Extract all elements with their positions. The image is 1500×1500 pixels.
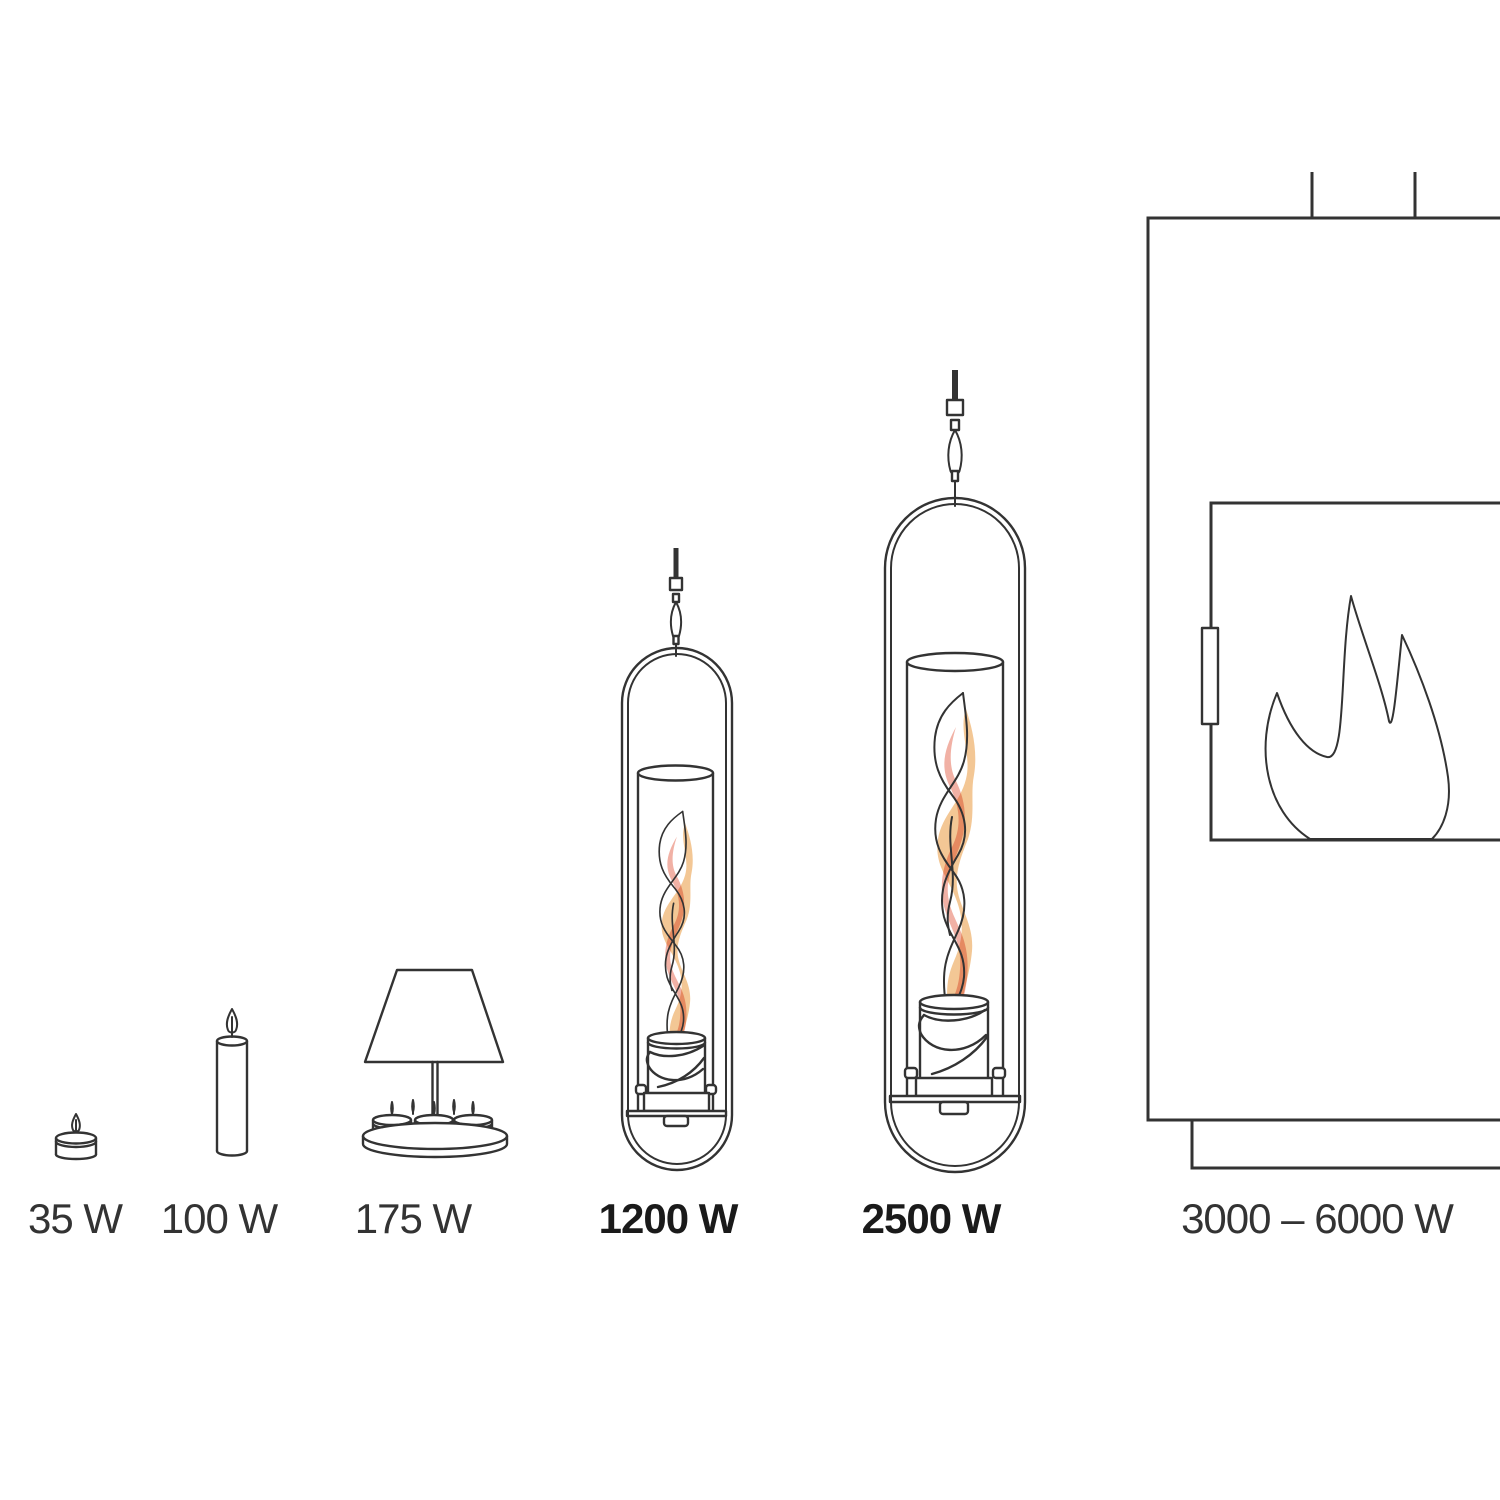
flame-icon [72,1114,80,1132]
stove-base [1192,1120,1500,1168]
hanging-fire-lantern-small-icon [616,540,736,1180]
flame-icon [227,1009,237,1037]
wattage-label: 1200 W [599,1198,738,1240]
door-handle [1202,628,1218,724]
wattage-label: 35 W [28,1198,122,1240]
hanging-fire-lantern-large-icon [880,365,1030,1180]
spiral-burner [890,995,1020,1114]
spiral-burner [627,1032,726,1126]
lamp-base [363,1123,507,1149]
lampshade [365,970,503,1062]
stove-pipes [1312,172,1415,218]
wattage-label: 3000 – 6000 W [1181,1198,1453,1240]
wattage-label: 100 W [161,1198,277,1240]
tealight-icon [40,1103,110,1173]
wattage-label: 175 W [355,1198,471,1240]
hanger-cable [670,548,682,656]
stove-door [1211,503,1500,840]
wattage-label: 2500 W [862,1198,1001,1240]
hanger-cable [947,370,963,506]
tealight-lamp-icon [348,952,520,1170]
wattage-comparison-diagram: 35 W 100 W 175 W 1200 W 2500 W 3000 – 60… [0,0,1500,1500]
wood-stove-icon [1140,165,1500,1175]
fire-flame-icon [1266,596,1449,839]
candle-icon [200,1000,264,1168]
